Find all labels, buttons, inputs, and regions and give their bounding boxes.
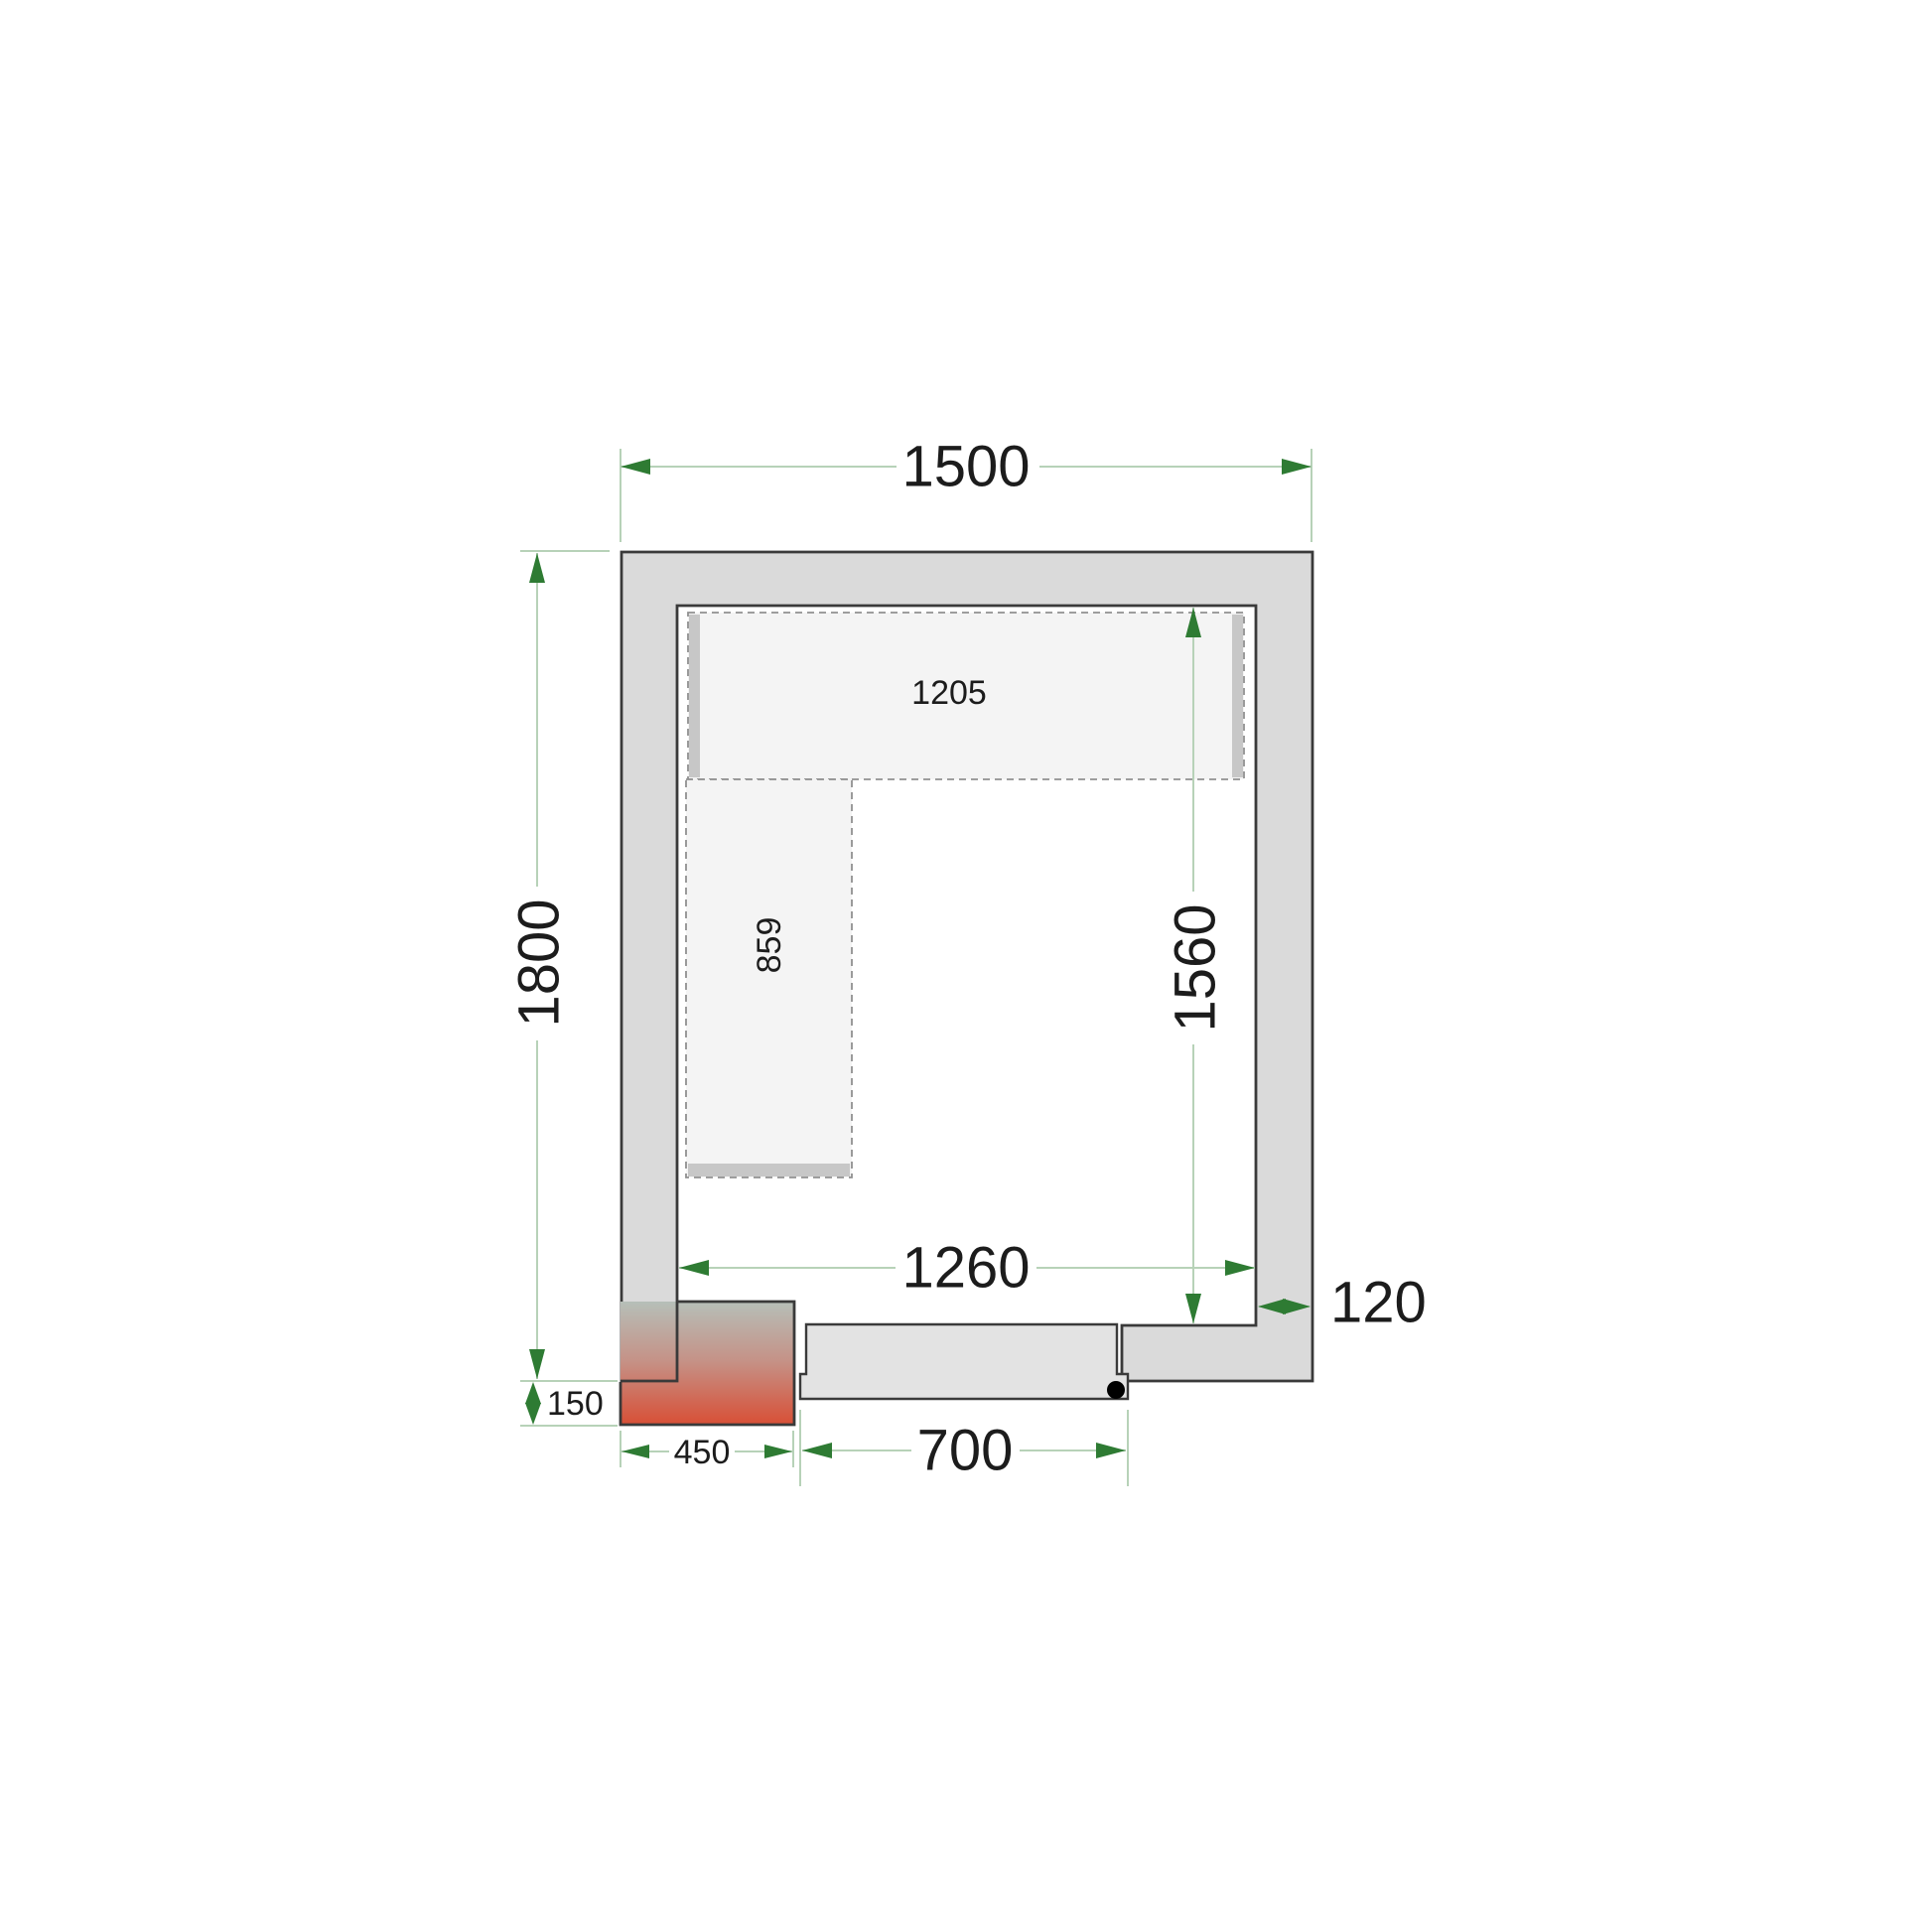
top-shelf-right-support <box>1232 615 1243 777</box>
background <box>0 0 1932 1932</box>
dim-label-door-width: 700 <box>917 1419 1014 1483</box>
dim-label-unit-width: 450 <box>674 1434 731 1471</box>
floor-plan-page: 1500 1800 1560 1260 120 150 <box>0 0 1932 1932</box>
left-shelf-support <box>688 1164 850 1176</box>
dim-label-unit-overhang: 150 <box>547 1385 604 1423</box>
dim-label-inner-width: 1260 <box>901 1236 1030 1301</box>
dim-label-outer-depth: 1800 <box>507 898 572 1027</box>
dim-label-outer-width: 1500 <box>901 435 1030 499</box>
dim-label-left-shelf: 859 <box>751 917 788 974</box>
floor-plan-svg: 1500 1800 1560 1260 120 150 <box>0 0 1932 1932</box>
door-panel <box>800 1324 1128 1399</box>
dim-label-wall-thickness: 120 <box>1330 1271 1427 1335</box>
condensing-unit <box>621 1302 794 1425</box>
left-shelf <box>686 779 852 1177</box>
dim-label-top-shelf: 1205 <box>911 674 987 712</box>
door-handle-dot <box>1107 1381 1125 1399</box>
top-shelf-left-support <box>689 615 700 777</box>
dim-label-inner-depth: 1560 <box>1164 903 1228 1032</box>
